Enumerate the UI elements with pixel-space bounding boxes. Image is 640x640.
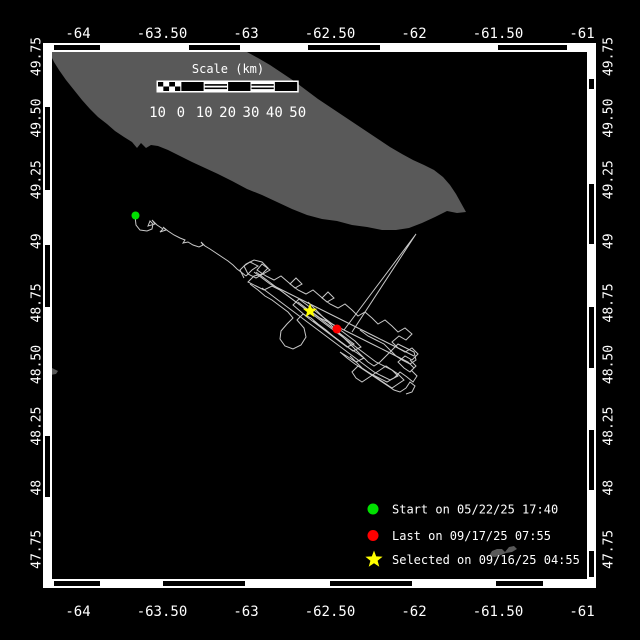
scalebar-title: Scale (km) [192,62,264,76]
lon-axis-label-top: -61.50 [473,26,524,42]
scalebar-segment [274,82,297,92]
tracking-map: -64-64-63.50-63.50-63-63-62.50-62.50-62-… [0,0,640,640]
scalebar-checker-cell [175,87,181,92]
lon-axis-label-bottom: -63 [233,604,258,620]
legend-last-label: Last on 09/17/25 07:55 [392,529,551,543]
zebra-segment [589,430,594,490]
lon-axis-label-bottom: -62.50 [305,604,356,620]
lon-axis-label-top: -63 [233,26,258,42]
zebra-segment [589,184,594,244]
zebra-segment [45,436,50,497]
scalebar-checker-cell [163,87,169,92]
legend: Start on 05/22/25 17:40 Last on 09/17/25… [365,503,579,568]
zebra-segment [498,45,567,50]
lat-axis-label-right: 49.50 [602,99,617,138]
lat-axis-label-right: 49 [602,233,617,249]
scalebar-tick-label: 40 [266,105,283,121]
lon-axis-label-bottom: -62 [401,604,426,620]
zebra-segment [589,79,594,89]
lon-axis-label-bottom: -61 [569,604,594,620]
scalebar-segment [251,82,274,92]
legend-start-label: Start on 05/22/25 17:40 [392,503,558,517]
scalebar-tick-label: 30 [243,105,260,121]
zebra-segment [163,581,245,586]
lat-axis-label-right: 48.25 [602,407,617,446]
map-canvas: -64-64-63.50-63.50-63-63-62.50-62.50-62-… [0,0,640,640]
start-marker [132,212,140,220]
legend-last-dot-icon [368,530,379,541]
zebra-segment [54,581,100,586]
track-segment [254,272,414,356]
scalebar-checker-cell [158,87,164,92]
zebra-segment [45,107,50,190]
lat-axis-label-left: 48.25 [30,407,45,446]
lon-axis-label-top: -61 [569,26,594,42]
track-layer [135,216,418,394]
lon-axis-label-bottom: -64 [65,604,90,620]
lat-axis-label-right: 48.50 [602,345,617,384]
lat-axis-label-right: 47.75 [602,530,617,569]
lon-axis-label-bottom: -63.50 [137,604,188,620]
last-marker [333,325,342,334]
scalebar-stripe [204,88,227,90]
scalebar-checker-cell [169,87,175,92]
lat-axis-label-right: 48 [602,480,617,496]
track-segment [244,262,418,372]
zebra-segment [45,245,50,307]
scalebar-segment [228,82,251,92]
track-segment [344,234,416,332]
lat-axis-label-left: 49.25 [30,160,45,199]
legend-selected-label: Selected on 09/16/25 04:55 [392,553,580,567]
scalebar-tick-label: 10 [196,105,213,121]
lat-axis-label-left: 48 [30,480,45,496]
lat-axis-label-right: 49.25 [602,160,617,199]
lat-axis-label-left: 47.75 [30,530,45,569]
scalebar-stripe [251,88,274,90]
scalebar-tick-label: 10 [149,105,166,121]
scalebar-checker-cell [175,82,181,87]
track-segment [135,216,246,276]
lat-axis-label-left: 48.50 [30,345,45,384]
scalebar-segment [181,82,204,92]
scalebar-checker-cell [163,82,169,87]
lat-axis-label-right: 49.75 [602,37,617,76]
lat-axis-label-left: 49 [30,233,45,249]
lon-axis-label-top: -62.50 [305,26,356,42]
lon-axis-label-bottom: -61.50 [473,604,524,620]
lat-axis-label-right: 48.75 [602,283,617,322]
lon-axis-label-top: -64 [65,26,90,42]
zebra-segment [330,581,412,586]
scalebar-tick-label: 20 [219,105,236,121]
zebra-segment [308,45,380,50]
scalebar-tick-label: 0 [177,105,185,121]
zebra-segment [496,581,543,586]
lat-axis-label-left: 49.75 [30,37,45,76]
lon-axis-label-top: -62 [401,26,426,42]
scalebar-stripe [251,84,274,86]
scalebar-stripe [204,84,227,86]
lon-axis-label-top: -63.50 [137,26,188,42]
lat-axis-label-left: 48.75 [30,283,45,322]
marker-layer [132,212,342,334]
zebra-segment [589,307,594,368]
scalebar-tick-label: 50 [289,105,306,121]
scalebar-checker-cell [158,82,164,87]
scalebar-checker-cell [169,82,175,87]
scalebar-segment [204,82,227,92]
zebra-segment [589,551,594,577]
zebra-segment [189,45,240,50]
lat-axis-label-left: 49.50 [30,99,45,138]
zebra-segment [54,45,100,50]
legend-start-dot-icon [368,504,379,515]
island-landmass [52,52,466,230]
legend-selected-star-icon [365,551,382,567]
